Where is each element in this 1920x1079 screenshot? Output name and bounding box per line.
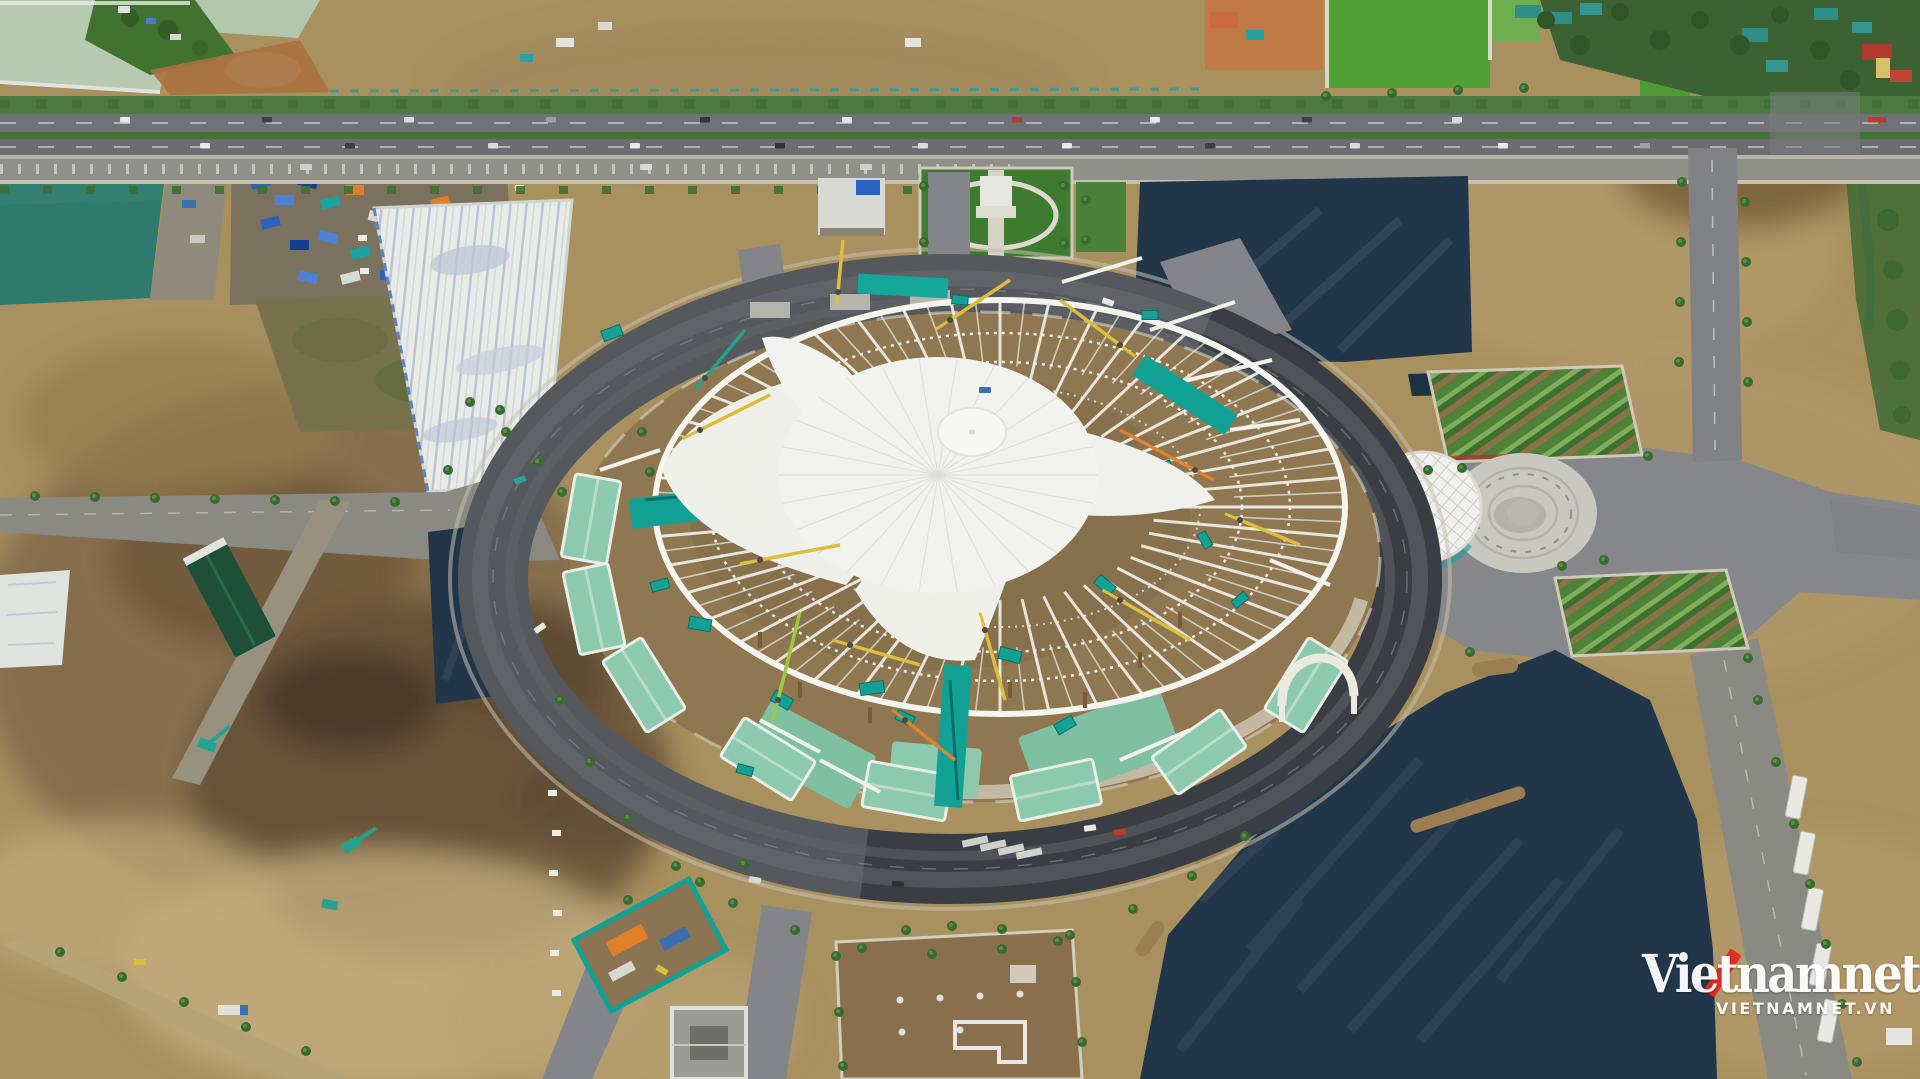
vietnamnet-watermark: Vietnamnet VIETNAMNET.VN bbox=[1642, 948, 1912, 1058]
concrete-building bbox=[672, 1008, 746, 1079]
aerial-photo-scene bbox=[0, 0, 1920, 1079]
aerial-photo-construction-site: Vietnamnet VIETNAMNET.VN bbox=[0, 0, 1920, 1079]
watermark-brand-text: Vietnamnet bbox=[1642, 948, 1885, 1003]
building-pad bbox=[836, 930, 1082, 1079]
